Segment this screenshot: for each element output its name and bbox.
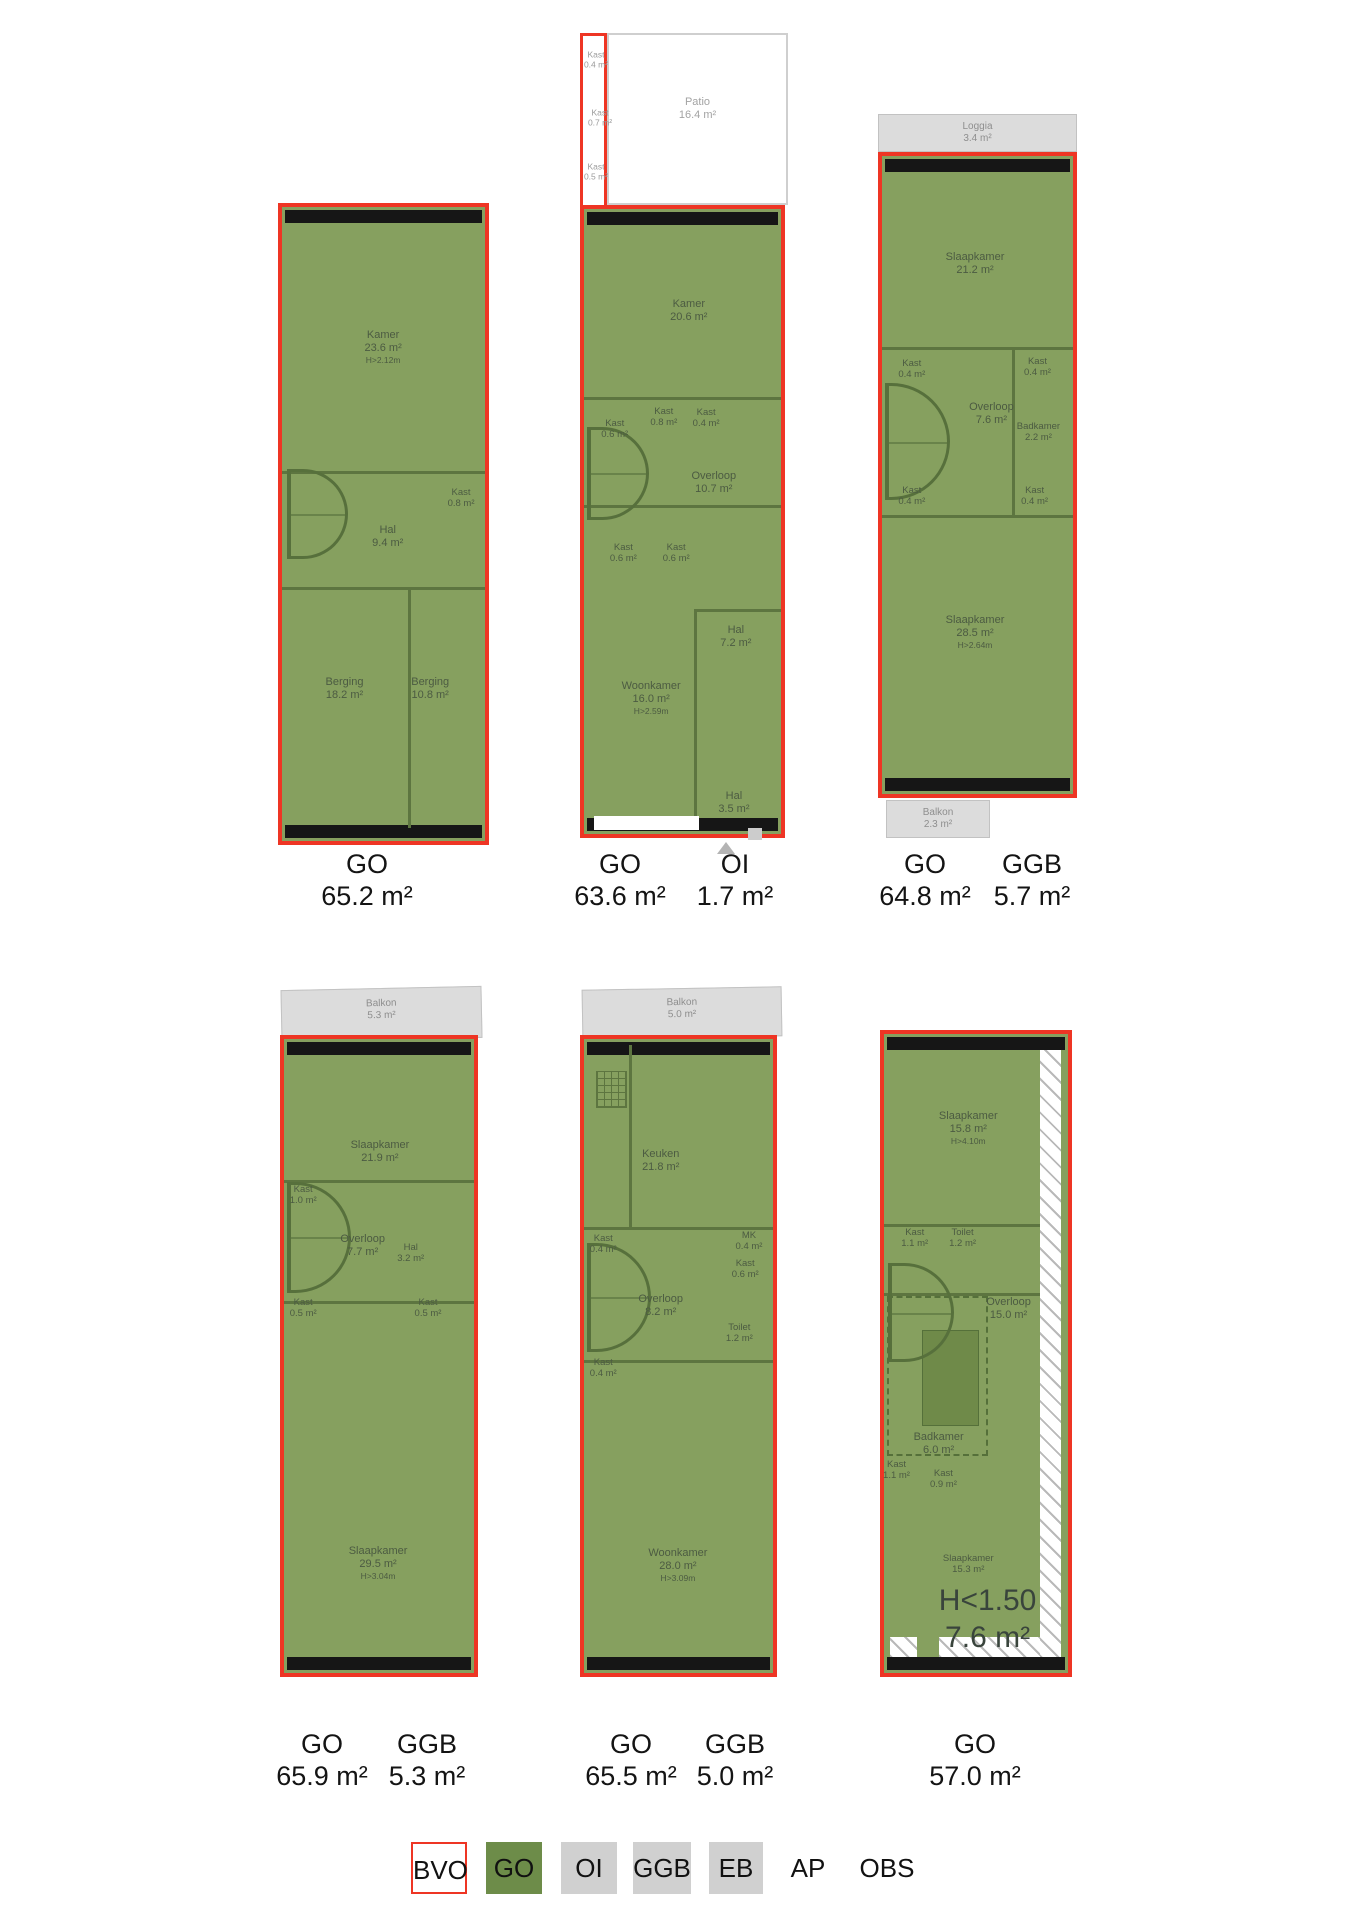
legend-label-obs: OBS: [860, 1842, 915, 1894]
wall: [285, 825, 482, 838]
measure-label: GO64.8 m²: [879, 848, 971, 912]
room-label: Kast0.6 m²: [610, 542, 637, 564]
legend-swatch-oi: OI: [561, 1842, 617, 1894]
room-label: Kast0.4 m²: [590, 1357, 617, 1379]
room-label: Kast1.0 m²: [290, 1184, 317, 1206]
room-label: Balkon5.0 m²: [666, 997, 697, 1022]
room-label: Kast0.8 m²: [448, 487, 475, 509]
room-label: Kamer 23.6 m² H>2.12m: [364, 329, 401, 365]
wall: [287, 1657, 471, 1670]
floorplan-6: Slaapkamer15.8 m² H>4.10m Kast1.1 m² Toi…: [880, 1030, 1072, 1677]
room-label: Kast0.4 m²: [898, 485, 925, 507]
measure-label: GGB5.3 m²: [389, 1728, 466, 1792]
low-height-label: H<1.507.6 m²: [939, 1582, 1037, 1656]
room-label: Slaapkamer29.5 m² H>3.04m: [349, 1545, 408, 1581]
oi-area: [594, 816, 700, 830]
room-label: Keuken21.8 m²: [642, 1148, 679, 1174]
legend-swatch-eb: EB: [709, 1842, 763, 1894]
legend-swatch-ggb: GGB: [633, 1842, 691, 1894]
room-label: Balkon5.3 m²: [366, 998, 397, 1023]
room-label: Berging18.2 m²: [326, 676, 364, 702]
legend-label-ap: AP: [791, 1842, 826, 1894]
floorplan-sheet: Kamer 23.6 m² H>2.12m Hal9.4 m² Kast0.8 …: [0, 0, 1358, 1920]
wall: [629, 1045, 632, 1226]
wall: [584, 1227, 773, 1230]
wall: [882, 347, 1073, 350]
patio-area: Patio16.4 m²: [607, 33, 788, 205]
room-label: Kast0.4 m²: [1024, 356, 1051, 378]
room-label: Berging10.8 m²: [411, 676, 449, 702]
room-label: Kast0.5 m²: [290, 1297, 317, 1319]
balkon-area: Balkon5.3 m²: [280, 986, 482, 1042]
room-label: Kast0.6 m²: [663, 542, 690, 564]
room-label: Kast0.4 m²: [693, 407, 720, 429]
wall: [694, 609, 781, 612]
room-label: Overloop7.6 m²: [969, 401, 1014, 427]
balkon-area: Balkon2.3 m²: [886, 800, 990, 838]
room-label: Kast0.8 m²: [650, 406, 677, 428]
room-label: Badkamer2.2 m²: [1017, 421, 1060, 443]
floorplan-5: Keuken21.8 m² Kast0.4 m² MK0.4 m² Kast0.…: [580, 1035, 777, 1677]
wall: [408, 587, 411, 828]
room-label: Kamer20.6 m²: [670, 298, 707, 324]
room-label: Kast0.7 m²: [588, 109, 612, 128]
room-label: Slaapkamer15.3 m²: [943, 1553, 994, 1575]
wall: [887, 1657, 1065, 1670]
room-label: Toilet1.2 m²: [949, 1227, 976, 1249]
low-height-hatch: [890, 1637, 918, 1657]
room-label: Loggia3.4 m²: [962, 121, 992, 145]
wall: [287, 1042, 471, 1055]
room-label: Badkamer6.0 m²: [914, 1431, 964, 1457]
legend-label: BVO: [413, 1855, 468, 1885]
legend-label: EB: [719, 1853, 754, 1883]
room-label: Patio16.4 m²: [679, 96, 716, 122]
wall: [885, 778, 1070, 791]
wall: [694, 609, 697, 822]
room-label: Slaapkamer21.2 m²: [946, 251, 1005, 277]
room-label: Kast0.6 m²: [601, 418, 628, 440]
wall: [587, 212, 778, 225]
room-label: Hal9.4 m²: [372, 524, 403, 550]
room-label: Kast0.5 m²: [415, 1297, 442, 1319]
room-label: Slaapkamer15.8 m² H>4.10m: [939, 1110, 998, 1146]
floorplan-2: Kamer20.6 m² Kast0.6 m² Kast0.8 m² Kast0…: [580, 205, 785, 838]
measure-label: OI1.7 m²: [697, 848, 774, 912]
room-label: Woonkamer28.0 m² H>3.09m: [648, 1547, 707, 1583]
measure-value: 65.2 m²: [321, 880, 413, 912]
floorplan-3: Slaapkamer21.2 m² Kast0.4 m² Kast0.4 m² …: [878, 152, 1077, 798]
wall: [587, 1657, 770, 1670]
measure-label: GO65.5 m²: [585, 1728, 677, 1792]
room-label: Kast0.5 m²: [584, 163, 608, 182]
measure-label: GO63.6 m²: [574, 848, 666, 912]
legend-label: OI: [575, 1853, 602, 1883]
balkon-area: Balkon5.0 m²: [582, 986, 783, 1039]
room-label: Balkon2.3 m²: [923, 807, 954, 831]
wall: [282, 587, 485, 590]
room-label: Toilet1.2 m²: [726, 1322, 753, 1344]
room-label: Hal3.5 m²: [718, 790, 749, 816]
spiral-stairs-icon: [885, 383, 950, 500]
room-label: Kast1.1 m²: [901, 1227, 928, 1249]
room-label: MK0.4 m²: [736, 1230, 763, 1252]
measure-code: GO: [321, 848, 413, 880]
room-label: Kast1.1 m²: [883, 1459, 910, 1481]
spiral-stairs-icon: [287, 469, 348, 560]
room-label: Hal3.2 m²: [397, 1242, 424, 1264]
room-note: H>2.12m: [364, 355, 401, 365]
wall: [587, 1042, 770, 1055]
room-label: Woonkamer16.0 m² H>2.59m: [622, 680, 681, 716]
measure-label: GGB5.7 m²: [994, 848, 1071, 912]
room-label: Overloop7.7 m²: [340, 1233, 385, 1259]
measure-label: GO57.0 m²: [929, 1728, 1021, 1792]
low-height-hatch: [1040, 1050, 1061, 1657]
room-label: Overloop15.0 m²: [986, 1296, 1031, 1322]
wall: [884, 1224, 1040, 1227]
measure-label: GO65.9 m²: [276, 1728, 368, 1792]
room-label: Kast0.6 m²: [732, 1258, 759, 1280]
room-label: Kast0.4 m²: [1021, 485, 1048, 507]
wall: [584, 397, 781, 400]
wall: [885, 159, 1070, 172]
floorplan-4: Slaapkamer21.9 m² Kast1.0 m² Overloop7.7…: [280, 1035, 478, 1677]
room-label: Overloop10.7 m²: [691, 470, 736, 496]
kitchen-sink-icon: [596, 1071, 626, 1108]
room-label: Slaapkamer28.5 m² H>2.64m: [946, 614, 1005, 650]
legend-swatch-bvo: BVO: [411, 1842, 467, 1894]
room-label: Kast0.9 m²: [930, 1468, 957, 1490]
legend-swatch-go: GO: [486, 1842, 542, 1894]
floorplan-1: Kamer 23.6 m² H>2.12m Hal9.4 m² Kast0.8 …: [278, 203, 489, 845]
room-label: Kast0.4 m²: [584, 51, 608, 70]
wall: [285, 210, 482, 223]
room-label: Overloop8.2 m²: [638, 1293, 683, 1319]
room-label: Slaapkamer21.9 m²: [351, 1139, 410, 1165]
legend-label: GO: [494, 1853, 534, 1883]
room-label: Kast0.4 m²: [898, 358, 925, 380]
loggia-area: Loggia3.4 m²: [878, 114, 1077, 152]
wall: [284, 1180, 474, 1183]
room-label: Kast0.4 m²: [590, 1233, 617, 1255]
room-area: 23.6 m²: [364, 342, 401, 355]
wall: [1012, 347, 1015, 515]
measure-label: GGB5.0 m²: [697, 1728, 774, 1792]
room-label: Hal7.2 m²: [720, 624, 751, 650]
wall: [887, 1037, 1065, 1050]
step-chip: [748, 828, 762, 840]
room-name: Kamer: [364, 329, 401, 342]
legend-label: GGB: [633, 1853, 691, 1883]
wall: [882, 515, 1073, 518]
measure-label: GO 65.2 m²: [321, 848, 413, 912]
